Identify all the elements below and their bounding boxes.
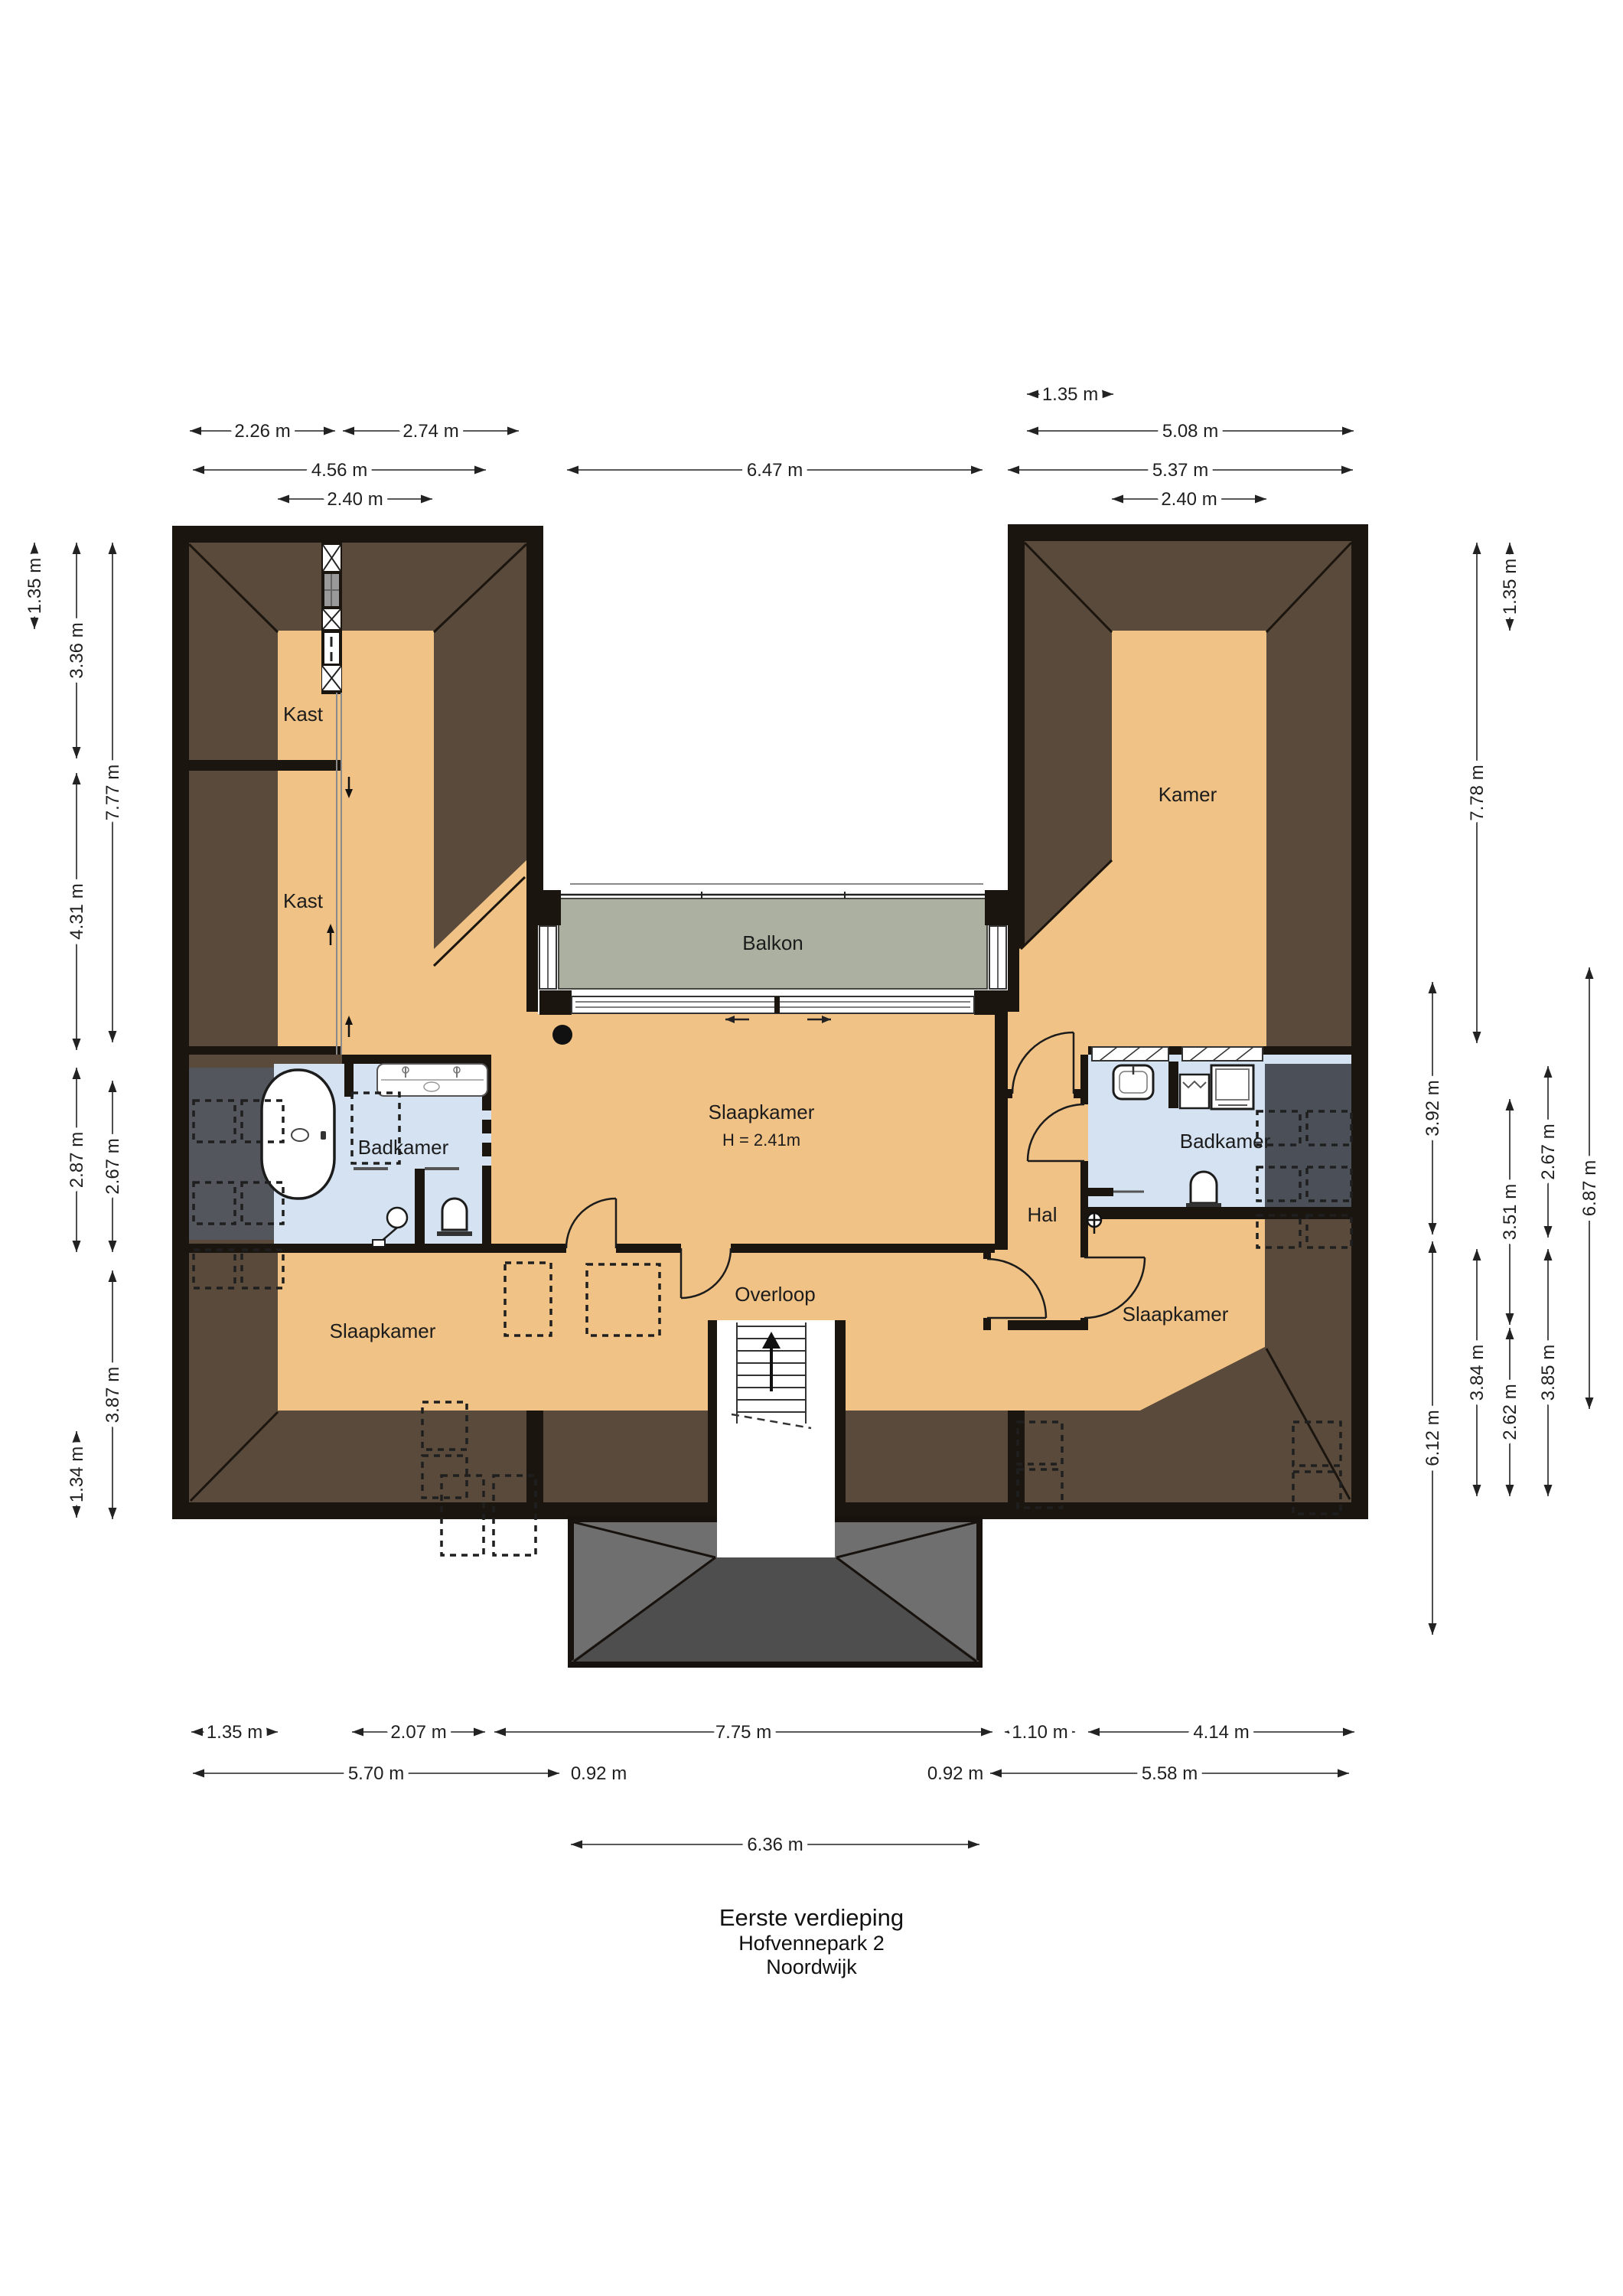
svg-text:2.74 m: 2.74 m [402, 421, 458, 442]
dim-h: 1.10 m [1005, 1722, 1075, 1743]
balcony-side-window [539, 926, 556, 989]
dim-v: 2.62 m [1500, 1328, 1520, 1496]
svg-text:2.26 m: 2.26 m [234, 421, 290, 442]
dim-h: 5.37 m [1008, 460, 1353, 481]
svg-text:2.67 m: 2.67 m [103, 1138, 123, 1194]
svg-text:0.92 m: 0.92 m [927, 1763, 983, 1784]
svg-text:1.35 m: 1.35 m [24, 558, 45, 614]
column-dot [552, 1025, 572, 1045]
dim-v: 6.87 m [1579, 967, 1600, 1409]
dim-h: 5.70 m [193, 1763, 559, 1784]
svg-text:2.87 m: 2.87 m [67, 1132, 87, 1188]
room-label-slaapkamer-bottom-right: Slaapkamer [1123, 1303, 1229, 1326]
dim-v: 1.35 m [1500, 543, 1520, 631]
dim-v: 4.31 m [67, 773, 87, 1050]
svg-text:7.75 m: 7.75 m [715, 1722, 771, 1743]
balcony-side-window [989, 926, 1006, 989]
balcony-post [985, 890, 1008, 925]
svg-text:1.10 m: 1.10 m [1012, 1722, 1067, 1743]
svg-text:3.92 m: 3.92 m [1423, 1080, 1443, 1136]
svg-text:5.70 m: 5.70 m [348, 1763, 404, 1784]
shower [387, 1208, 407, 1228]
dim-v: 2.67 m [103, 1081, 123, 1252]
title-city: Noordwijk [24, 1955, 1600, 1979]
dim-v: 7.77 m [103, 543, 123, 1042]
dim-v: 3.51 m [1500, 1099, 1520, 1325]
svg-text:5.58 m: 5.58 m [1142, 1763, 1198, 1784]
dim-v: 3.84 m [1467, 1249, 1488, 1496]
room-label-kast-2: Kast [283, 889, 324, 912]
floorplan-page: KastKastKamerBalkonSlaapkamerH = 2.41mBa… [0, 0, 1623, 2296]
dim-h: 1.35 m [191, 1722, 278, 1743]
dim-h: 6.47 m [567, 460, 983, 481]
svg-text:3.36 m: 3.36 m [67, 622, 87, 678]
svg-text:6.87 m: 6.87 m [1579, 1160, 1600, 1216]
dim-h: 2.40 m [278, 489, 432, 510]
dim-v: 3.87 m [103, 1270, 123, 1519]
dim-h: 1.35 m [1027, 384, 1113, 405]
title-floor: Eerste verdieping [24, 1904, 1600, 1932]
svg-text:6.47 m: 6.47 m [747, 460, 803, 481]
room-label-slaapkamer-center: Slaapkamer [709, 1101, 815, 1124]
dim-h: 2.07 m [352, 1722, 485, 1743]
svg-text:5.08 m: 5.08 m [1162, 421, 1218, 442]
svg-text:3.51 m: 3.51 m [1500, 1184, 1520, 1240]
svg-text:2.40 m: 2.40 m [1161, 489, 1217, 510]
wall-strip-windows [322, 545, 341, 690]
svg-text:1.34 m: 1.34 m [67, 1446, 87, 1502]
svg-text:2.40 m: 2.40 m [327, 489, 383, 510]
svg-text:5.37 m: 5.37 m [1152, 460, 1208, 481]
toilet [442, 1199, 467, 1230]
dim-v: 2.87 m [67, 1068, 87, 1252]
svg-text:6.36 m: 6.36 m [747, 1835, 803, 1855]
svg-text:7.78 m: 7.78 m [1467, 765, 1488, 820]
title-block: Eerste verdieping Hofvennepark 2 Noordwi… [0, 1904, 1623, 1979]
dim-h: 4.14 m [1088, 1722, 1354, 1743]
title-address: Hofvennepark 2 [24, 1932, 1600, 1955]
dim-h: 0.92 m [926, 1763, 985, 1784]
dim-h: 4.56 m [193, 460, 486, 481]
dim-h: 6.36 m [571, 1835, 979, 1855]
dim-v: 1.35 m [24, 543, 45, 629]
svg-text:3.87 m: 3.87 m [103, 1367, 123, 1423]
room-label-overloop: Overloop [735, 1283, 816, 1306]
dim-v: 3.36 m [67, 543, 87, 758]
room-label-slaapkamer-bottom-left: Slaapkamer [330, 1319, 436, 1342]
svg-text:6.12 m: 6.12 m [1423, 1410, 1443, 1466]
svg-text:1.35 m: 1.35 m [1500, 559, 1520, 615]
svg-text:4.31 m: 4.31 m [67, 883, 87, 939]
svg-text:2.67 m: 2.67 m [1538, 1124, 1559, 1179]
svg-text:7.77 m: 7.77 m [103, 765, 123, 820]
room-sub-slaapkamer-center: H = 2.41m [722, 1130, 800, 1150]
svg-text:3.84 m: 3.84 m [1467, 1345, 1488, 1401]
dim-v: 2.67 m [1538, 1066, 1559, 1238]
dim-v: 6.12 m [1423, 1241, 1443, 1635]
room-label-balkon: Balkon [742, 931, 803, 954]
washing-machine [1211, 1065, 1253, 1109]
stairwell [717, 1320, 835, 1557]
balcony-post [539, 990, 572, 1015]
dim-h: 5.58 m [990, 1763, 1349, 1784]
room-label-hal: Hal [1027, 1203, 1057, 1226]
svg-text:2.07 m: 2.07 m [390, 1722, 446, 1743]
room-label-kamer: Kamer [1159, 783, 1217, 806]
dim-v: 3.85 m [1538, 1249, 1559, 1496]
dim-v: 1.34 m [67, 1431, 87, 1518]
room-label-badkamer-left: Badkamer [358, 1136, 449, 1159]
balcony-post [974, 990, 1008, 1015]
svg-text:2.62 m: 2.62 m [1500, 1384, 1520, 1440]
svg-text:1.35 m: 1.35 m [1042, 384, 1098, 405]
svg-text:4.14 m: 4.14 m [1193, 1722, 1249, 1743]
svg-text:4.56 m: 4.56 m [311, 460, 367, 481]
dim-v: 3.92 m [1423, 982, 1443, 1234]
svg-text:1.35 m: 1.35 m [207, 1722, 262, 1743]
toilet [1191, 1172, 1217, 1203]
dim-h: 0.92 m [569, 1763, 628, 1784]
dim-v: 7.78 m [1467, 543, 1488, 1043]
room-label-kast-1: Kast [283, 703, 324, 726]
laundry-basket [1180, 1075, 1209, 1108]
dim-h: 2.40 m [1112, 489, 1266, 510]
dim-h: 2.26 m [190, 421, 335, 442]
balcony-post [538, 890, 561, 925]
room-label-badkamer-right: Badkamer [1180, 1130, 1271, 1153]
svg-text:3.85 m: 3.85 m [1538, 1345, 1559, 1401]
dim-h: 7.75 m [494, 1722, 992, 1743]
dim-h: 5.08 m [1027, 421, 1354, 442]
svg-text:0.92 m: 0.92 m [571, 1763, 627, 1784]
dim-h: 2.74 m [343, 421, 519, 442]
